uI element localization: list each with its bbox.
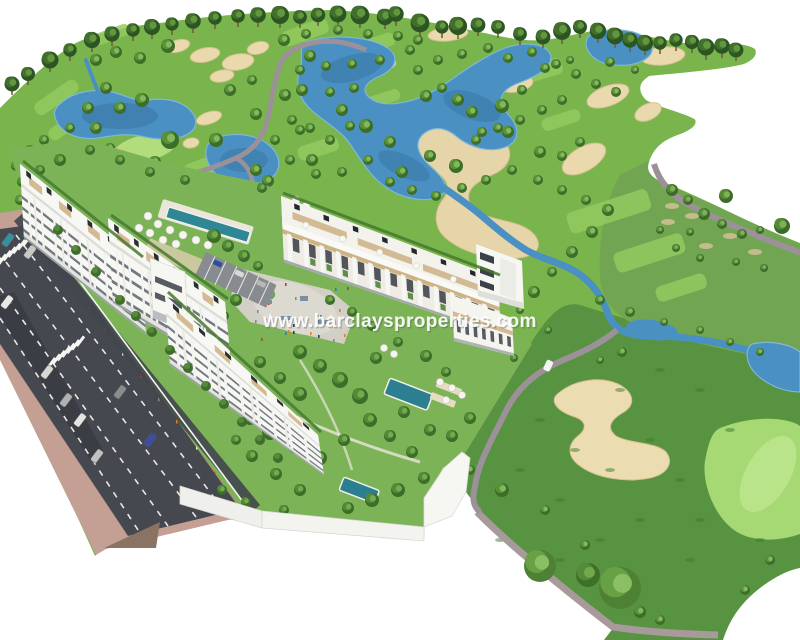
svg-text:www.barclaysproperties.com: www.barclaysproperties.com <box>262 311 537 332</box>
